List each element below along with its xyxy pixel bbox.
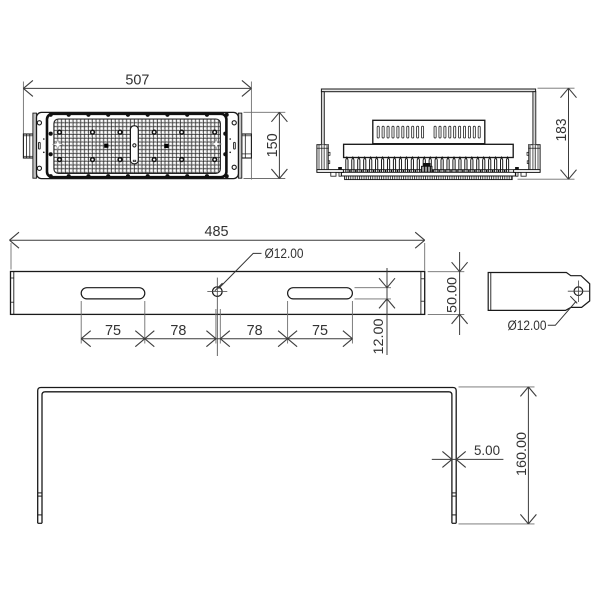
svg-text:50.00: 50.00 xyxy=(445,277,460,313)
svg-text:Ø12.00: Ø12.00 xyxy=(265,246,304,261)
svg-text:78: 78 xyxy=(247,322,263,339)
svg-text:160.00: 160.00 xyxy=(514,432,529,476)
svg-text:78: 78 xyxy=(170,322,186,339)
svg-text:12.00: 12.00 xyxy=(371,319,386,355)
svg-text:75: 75 xyxy=(312,322,328,339)
svg-text:485: 485 xyxy=(205,223,229,240)
svg-text:150: 150 xyxy=(264,133,281,157)
svg-text:75: 75 xyxy=(105,322,121,339)
svg-text:183: 183 xyxy=(553,119,570,142)
svg-text:Ø12.00: Ø12.00 xyxy=(508,318,547,333)
svg-text:5.00: 5.00 xyxy=(474,443,500,458)
svg-text:507: 507 xyxy=(125,71,149,88)
